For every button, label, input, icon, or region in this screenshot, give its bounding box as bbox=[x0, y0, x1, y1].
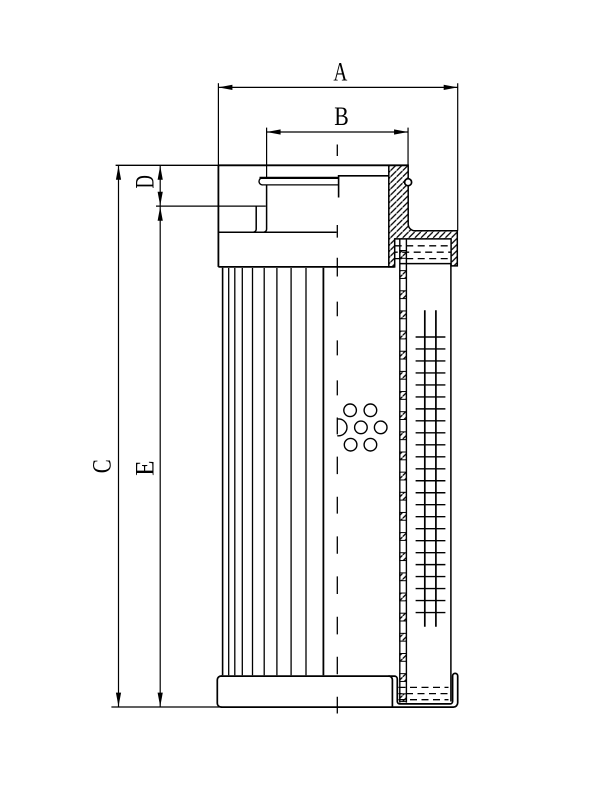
svg-text:E: E bbox=[130, 461, 160, 476]
svg-text:A: A bbox=[333, 58, 347, 88]
svg-text:D: D bbox=[130, 175, 159, 188]
svg-text:B: B bbox=[334, 102, 348, 132]
svg-text:C: C bbox=[89, 459, 118, 473]
